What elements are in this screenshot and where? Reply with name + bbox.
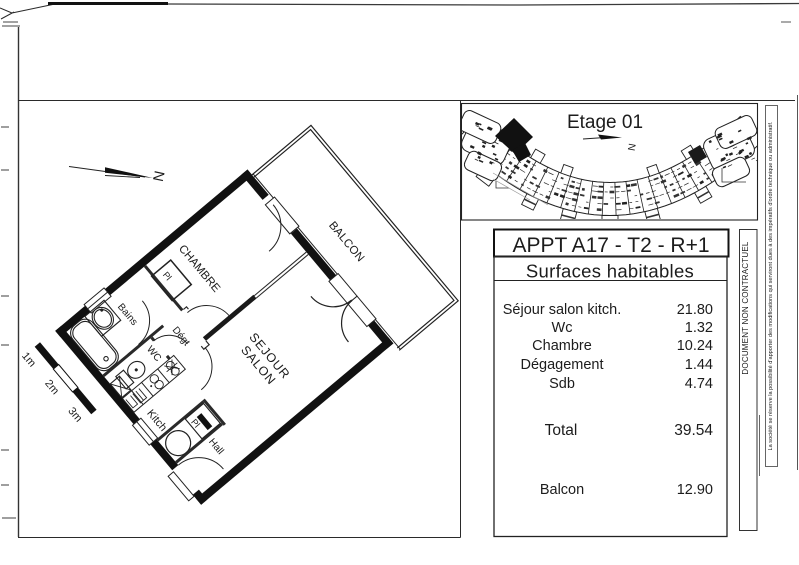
svg-text:Surfaces habitables: Surfaces habitables <box>526 261 694 282</box>
svg-text:4.74: 4.74 <box>685 376 713 392</box>
svg-text:Pl: Pl <box>161 270 174 283</box>
svg-text:Chambre: Chambre <box>532 338 592 354</box>
svg-text:1.44: 1.44 <box>685 357 713 373</box>
svg-text:Dégagement: Dégagement <box>520 357 603 373</box>
svg-text:1.32: 1.32 <box>685 320 713 336</box>
svg-text:Dégt: Dégt <box>170 325 192 348</box>
svg-text:WC: WC <box>144 344 163 364</box>
svg-text:12.90: 12.90 <box>677 482 713 498</box>
svg-text:CHAMBRE: CHAMBRE <box>176 243 222 295</box>
svg-text:10.24: 10.24 <box>677 338 713 354</box>
svg-text:BALCON: BALCON <box>326 220 366 265</box>
svg-text:21.80: 21.80 <box>677 302 713 318</box>
svg-text:La société se réserve la possi: La société se réserve la possibilité d'a… <box>768 121 774 450</box>
svg-text:3m: 3m <box>65 405 84 424</box>
svg-text:Bains: Bains <box>115 302 140 328</box>
svg-text:Hall: Hall <box>206 437 226 457</box>
svg-text:APPT A17 - T2 - R+1: APPT A17 - T2 - R+1 <box>512 234 709 257</box>
svg-text:1m: 1m <box>19 350 38 369</box>
svg-text:39.54: 39.54 <box>674 422 713 439</box>
svg-text:Wc: Wc <box>552 320 573 336</box>
svg-text:N: N <box>149 169 167 183</box>
svg-text:Séjour salon kitch.: Séjour salon kitch. <box>503 302 621 318</box>
svg-text:Balcon: Balcon <box>540 482 584 498</box>
svg-text:DOCUMENT NON CONTRACTUEL: DOCUMENT NON CONTRACTUEL <box>741 241 750 374</box>
svg-text:Etage 01: Etage 01 <box>567 112 643 133</box>
svg-text:2m: 2m <box>42 378 61 397</box>
svg-text:Sdb: Sdb <box>549 376 575 392</box>
svg-text:Total: Total <box>545 422 578 439</box>
svg-text:N: N <box>625 142 637 151</box>
